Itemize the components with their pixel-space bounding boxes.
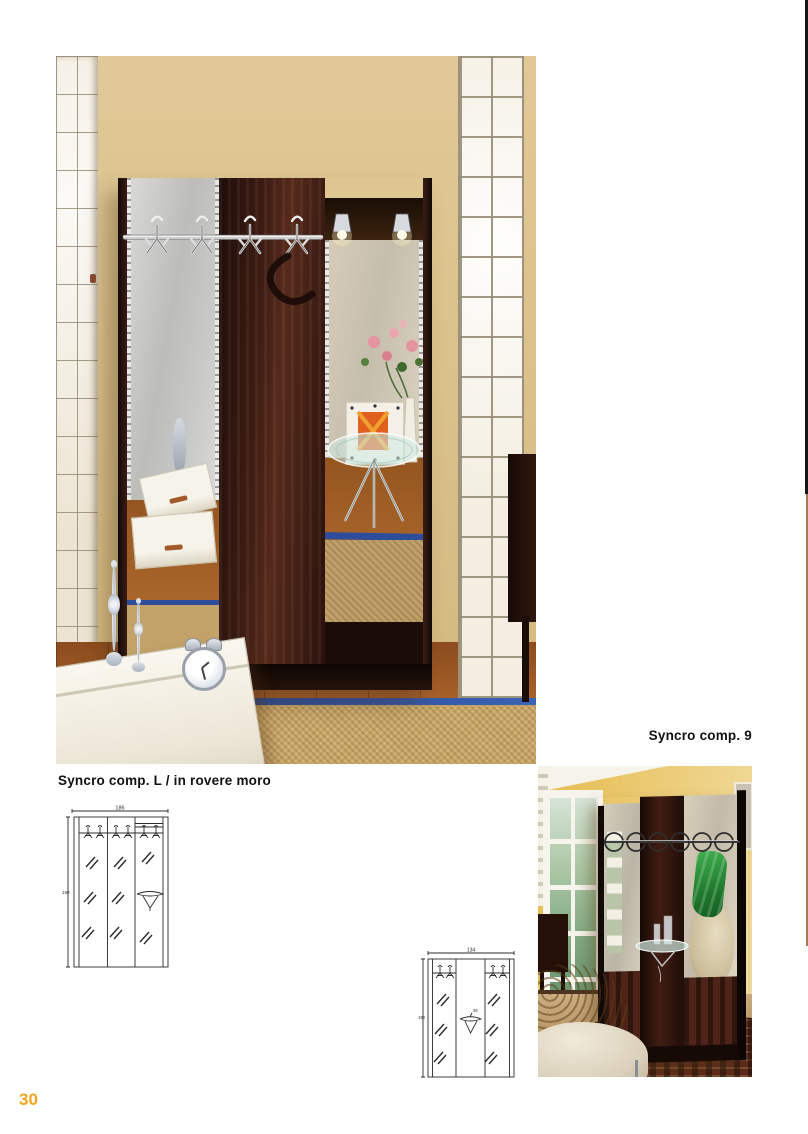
shelf-depth-label: 35 [473, 1008, 478, 1013]
candlestick-base [132, 662, 145, 672]
spot-light [392, 214, 412, 246]
glass-shelf [137, 892, 163, 897]
curly-coat-rail [604, 833, 740, 851]
mirror-reflection-glass-table [328, 433, 420, 528]
armchair-leg [635, 1060, 638, 1077]
height-label: 190 [418, 1015, 426, 1020]
glass-shelf [460, 1017, 481, 1021]
hook-shadow [270, 256, 312, 302]
catalog-page: Syncro comp. 9 Syncro comp. L / in rover… [0, 0, 808, 1134]
unit-front-view: 35 [428, 959, 514, 1077]
dimension-height: 190 [62, 817, 70, 967]
candlestick-bulb [134, 622, 144, 637]
glass-candlestick [132, 598, 145, 672]
dimension-width: 186 [72, 806, 168, 814]
technical-drawing-comp-9: 134 190 35 [418, 944, 522, 1084]
clock-face [182, 647, 226, 691]
glass-candlestick [106, 560, 122, 666]
photo-syncro-comp-9 [538, 766, 752, 1077]
candlestick-bulb [108, 594, 120, 615]
glass-shelf-with-bottles [636, 916, 688, 982]
dimension-height: 190 [418, 959, 426, 1077]
caption-syncro-comp-l: Syncro comp. L / in rovere moro [58, 773, 271, 788]
width-label: 186 [115, 806, 124, 812]
coat-rail [123, 235, 323, 240]
clock-hand-minute [201, 668, 206, 680]
candlestick-base [106, 652, 122, 666]
page-number: 30 [19, 1090, 38, 1110]
photo-syncro-comp-l [56, 56, 536, 764]
spot-light [332, 214, 352, 246]
technical-drawing-comp-l: 186 190 [62, 802, 174, 974]
height-label: 190 [62, 890, 70, 895]
mirror-reflection-flowers [361, 320, 423, 398]
dimension-width: 134 [428, 948, 514, 956]
caption-syncro-comp-9: Syncro comp. 9 [538, 728, 752, 743]
alarm-clock [180, 638, 228, 690]
unit-front-view [74, 817, 168, 967]
width-label: 134 [467, 948, 476, 954]
